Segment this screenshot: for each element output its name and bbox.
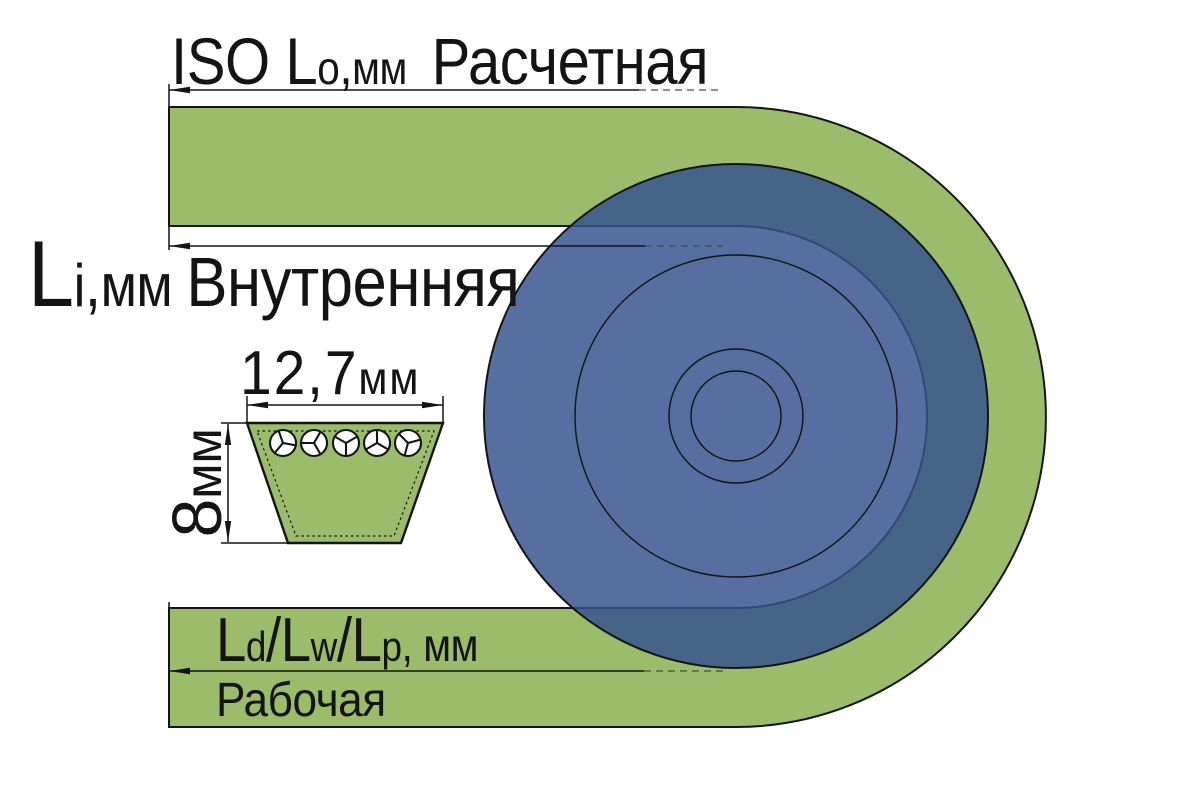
working-length-subscript-2: w xyxy=(311,623,337,670)
working-length-subscript-1: d xyxy=(246,623,266,670)
inner-length-unit: мм xyxy=(101,252,173,319)
outer-length-name: Расчетная xyxy=(432,24,709,98)
belt-pulley-diagram xyxy=(0,0,1200,800)
pulley-disk xyxy=(484,164,988,668)
working-length-symbol-1: L xyxy=(216,606,246,675)
outer-length-symbol: ISO L xyxy=(171,24,317,98)
working-length-subscript-3: p xyxy=(382,623,402,670)
working-length-slash-1: / xyxy=(266,606,281,675)
belt-height-unit: мм xyxy=(175,429,233,500)
belt-height-label: 8мм xyxy=(162,429,232,538)
belt-width-value: 12,7 xyxy=(240,339,358,408)
inner-length-comma: , xyxy=(85,246,101,320)
inner-length-subscript: i xyxy=(74,252,85,319)
working-length-name: Рабочая xyxy=(216,677,386,725)
width-arrow-right xyxy=(422,402,443,408)
inner-length-symbol: L xyxy=(28,221,74,326)
belt-cross-section xyxy=(247,423,443,543)
diagram-page: { "colors": { "belt": "#9abc6b", "pulley… xyxy=(0,0,1200,800)
working-length-symbol-2: L xyxy=(281,606,311,675)
outer-length-comma: , xyxy=(339,36,352,96)
outer-length-unit: мм xyxy=(352,42,407,94)
belt-height-value: 8 xyxy=(158,499,236,537)
working-length-symbol-3: L xyxy=(352,606,382,675)
belt-width-label: 12,7мм xyxy=(240,343,420,405)
working-length-unit: , мм xyxy=(402,619,478,671)
outer-length-subscript: o xyxy=(317,42,339,94)
working-length-label: Ld/Lw/Lp, мм xyxy=(216,610,478,672)
inner-length-name: Внутренняя xyxy=(186,243,519,321)
inner-length-label: Li,ммВнутренняя xyxy=(28,227,519,321)
belt-width-unit: мм xyxy=(358,352,420,404)
cord-circles xyxy=(270,430,421,456)
working-length-slash-2: / xyxy=(337,606,352,675)
outer-length-label: ISO Lo,ммРасчетная xyxy=(171,28,708,94)
